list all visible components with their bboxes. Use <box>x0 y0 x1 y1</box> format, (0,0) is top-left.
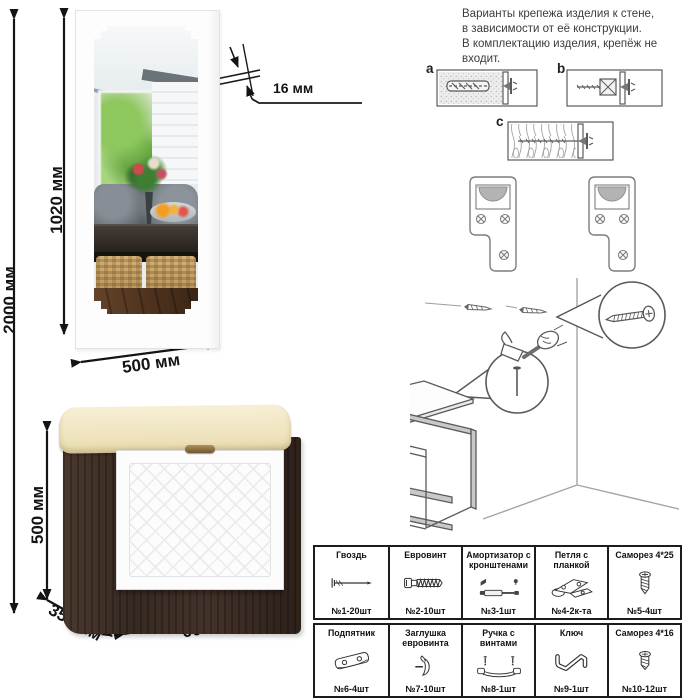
hardware-cell-nail: Гвоздь №1-20шт <box>315 547 388 618</box>
bench-cushion <box>59 404 292 453</box>
overall-height-label: 2000 мм <box>0 225 20 375</box>
flying-screws <box>425 303 546 315</box>
hardware-cell-screw-4x16: Саморез 4*16 №10-12шт <box>607 625 680 696</box>
fixing-diagram-wood <box>508 122 613 160</box>
foot-glide-icon <box>321 648 383 674</box>
hardware-cell-foot-glide: Подпятник №6-4шт <box>315 625 388 696</box>
hardware-item-name: Ручка с винтами <box>465 628 532 648</box>
fixing-diagram-hollow-wall <box>567 70 662 106</box>
hardware-item-qty: №5-4шт <box>627 606 662 616</box>
bench-height-label: 500 мм <box>28 440 48 590</box>
gas-lift-icon <box>468 575 530 601</box>
euro-screw-icon <box>395 570 457 596</box>
bench-handle <box>185 445 215 453</box>
hardware-item-qty: №10-12шт <box>622 684 667 694</box>
hardware-item-name: Подпятник <box>328 628 375 638</box>
hardware-item-name: Гвоздь <box>336 550 367 560</box>
bench-flap-door <box>116 450 284 590</box>
mirror-thickness-label: 16 мм <box>273 80 313 96</box>
hardware-item-qty: №2-10шт <box>406 606 446 616</box>
fixing-diagram-concrete <box>437 70 537 106</box>
hardware-item-name: Петля с планкой <box>538 550 605 570</box>
hardware-cell-handle: Ручка с винтами №8-1шт <box>461 625 534 696</box>
hardware-cell-gas-lift: Амортизатор с кронштенами №3-1шт <box>461 547 534 618</box>
hex-key-icon <box>541 648 603 674</box>
hardware-item-name: Саморез 4*16 <box>615 628 673 638</box>
hardware-cell-screw-4x25: Саморез 4*25 №5-4шт <box>607 547 680 618</box>
hardware-item-name: Ключ <box>560 628 583 638</box>
screw-cap-icon <box>395 653 457 679</box>
reflection-floor <box>94 288 198 314</box>
handle-icon <box>468 653 530 679</box>
quilted-pattern <box>129 463 271 577</box>
hanging-bracket-right <box>589 177 635 271</box>
reflection-tray <box>150 202 196 222</box>
mirror-height-label: 1020 мм <box>47 125 67 275</box>
hardware-item-qty: №1-20шт <box>332 606 372 616</box>
hardware-item-qty: №9-1шт <box>554 684 589 694</box>
hanging-bracket-left <box>470 177 516 271</box>
hardware-table: Гвоздь №1-20шт Евровинт <box>313 545 682 700</box>
reflection-table <box>94 224 198 254</box>
hardware-cell-key: Ключ №9-1шт <box>534 625 607 696</box>
hardware-item-name: Евровинт <box>404 550 446 560</box>
hardware-item-name: Заглушка евровинта <box>392 628 459 648</box>
hardware-row: Гвоздь №1-20шт Евровинт <box>313 545 682 620</box>
hinge-icon <box>541 575 603 601</box>
hardware-cell-hinge: Петля с планкой №4-2к-та <box>534 547 607 618</box>
assembly-illustration <box>410 55 683 547</box>
hardware-item-qty: №8-1шт <box>481 684 516 694</box>
hardware-item-name: Амортизатор с кронштенами <box>465 550 532 570</box>
hardware-cell-screw-cap: Заглушка евровинта №7-10шт <box>388 625 461 696</box>
nail-icon <box>321 570 383 596</box>
hardware-item-qty: №4-2к-та <box>552 606 592 616</box>
short-screw-icon <box>614 648 676 674</box>
hardware-item-name: Саморез 4*25 <box>615 550 673 560</box>
assembly-instruction-sheet: 2000 мм 1020 мм 500 мм 16 мм 500 мм 350 … <box>0 0 683 700</box>
hardware-item-qty: №7-10шт <box>406 684 446 694</box>
hardware-item-qty: №6-4шт <box>334 684 369 694</box>
screw-callout <box>557 282 665 348</box>
mirror-glass <box>94 26 198 314</box>
reflection-bouquet <box>124 150 172 198</box>
cabinet-carcass <box>410 411 476 530</box>
shoe-bench <box>57 404 303 636</box>
long-screw-icon <box>614 570 676 596</box>
hardware-cell-euro-screw: Евровинт №2-10шт <box>388 547 461 618</box>
hardware-row: Подпятник №6-4шт Заглушка евровинта <box>313 623 682 698</box>
mirror-panel <box>75 10 220 349</box>
hardware-item-qty: №3-1шт <box>481 606 516 616</box>
